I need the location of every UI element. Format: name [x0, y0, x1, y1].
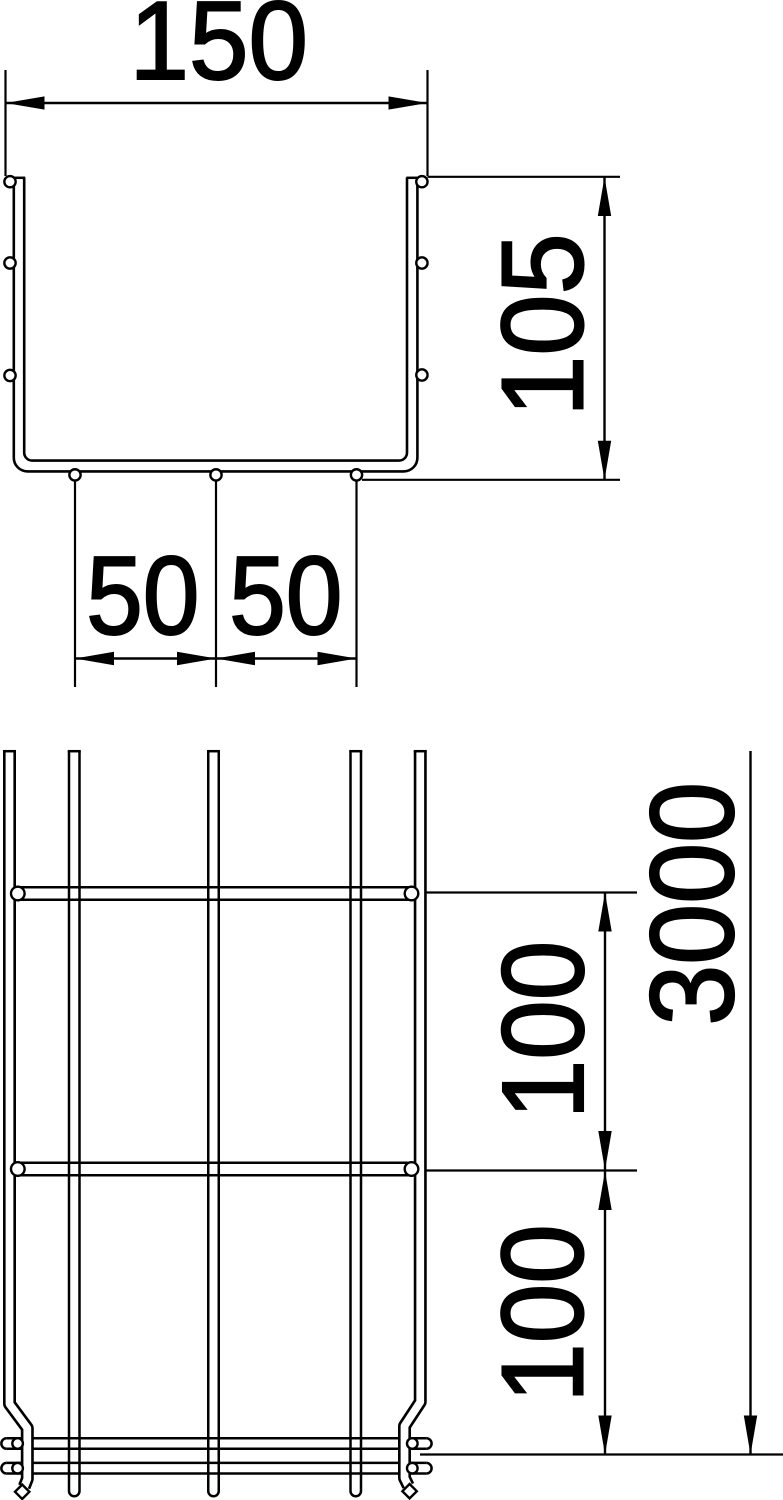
svg-text:105: 105 [478, 233, 607, 416]
svg-text:50: 50 [86, 534, 199, 658]
svg-text:150: 150 [130, 0, 309, 103]
svg-text:3000: 3000 [626, 782, 759, 1026]
svg-text:50: 50 [229, 534, 342, 658]
svg-text:100: 100 [478, 1224, 608, 1403]
svg-text:100: 100 [478, 941, 608, 1120]
